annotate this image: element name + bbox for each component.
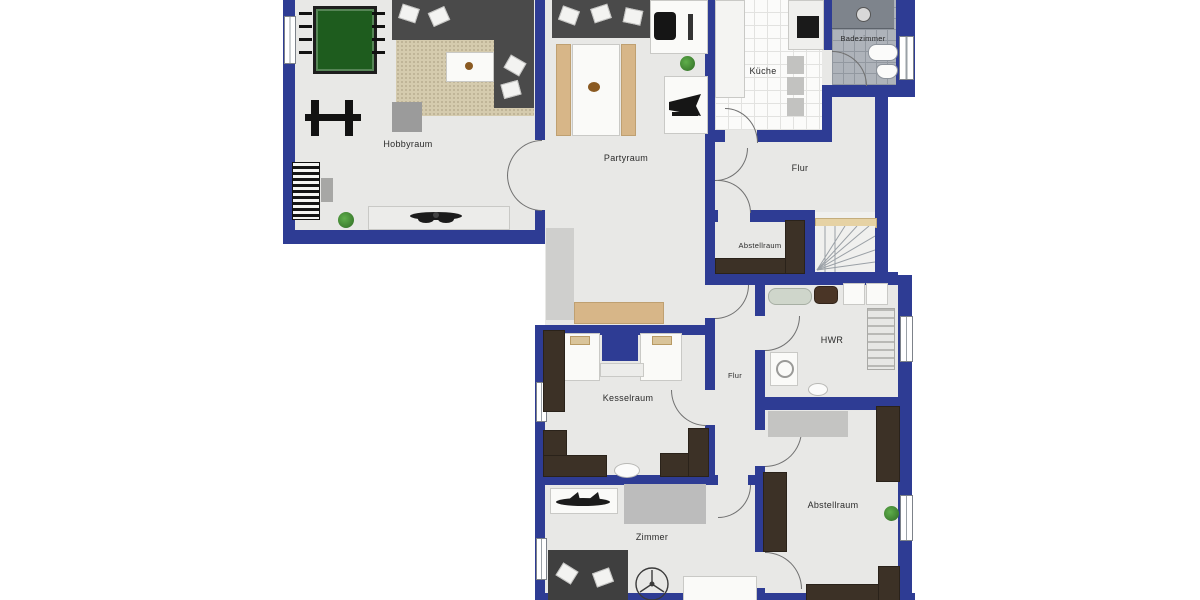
cabinet [543,330,565,412]
shower-head [856,7,871,22]
opening [705,390,715,425]
room-label-abstellraum-2: Abstellraum [780,500,886,510]
ironing-board [768,288,812,305]
room-label-hobbyraum: Hobbyraum [356,139,460,149]
appliance [866,283,888,305]
plant [338,212,354,228]
foosball-rod-handles [372,12,385,64]
wall-segment [705,210,718,222]
cabinet [763,472,787,552]
floor-plan: Hobbyraum Partyraum Küche Badezimmer Flu… [0,0,1200,600]
appliance [843,283,865,305]
runner-rug [546,228,574,320]
table-decor [588,82,600,92]
opening [718,475,748,485]
table [683,576,757,600]
boiler-label [652,336,672,345]
room-label-zimmer: Zimmer [600,532,704,542]
kitchen-counter [715,0,745,98]
cabinet [543,455,607,477]
window [284,16,296,64]
bench [556,44,571,136]
foosball-rod-handles [299,12,312,64]
window [536,538,547,580]
floor-drain [614,463,640,478]
exercise-machine [311,100,319,136]
room-label-hwr: HWR [802,335,862,345]
window [899,36,914,80]
wall-pier [602,325,638,361]
drying-rack [867,308,895,370]
wall-segment [535,210,545,234]
piano-bench [321,178,333,202]
plant [680,56,695,71]
control-panel [600,363,644,377]
boiler-label [570,336,590,345]
wall-segment [705,130,725,142]
wall-segment [822,97,832,130]
stool [787,77,804,95]
washing-machine-door [776,360,794,378]
plant [884,506,899,521]
cooktop [797,16,819,38]
winder-staircase [815,226,875,272]
wall-segment [755,350,765,430]
room-label-kueche: Küche [728,66,798,76]
cabinet [688,428,709,477]
ceiling-fan-icon [408,206,464,226]
wall-segment [822,85,915,97]
wall-segment [875,97,888,275]
opening [705,285,715,318]
rug [768,411,848,437]
foosball-table [313,6,377,74]
opening [755,430,765,466]
room-label-flur-lower: Flur [713,371,757,380]
ottoman [392,102,422,132]
cabinet [878,566,900,600]
room-label-partyraum: Partyraum [570,153,682,163]
wall-segment [283,230,545,244]
grand-piano-icon [666,82,704,126]
shelf-cabinet [715,258,789,274]
opening [822,50,832,85]
window [900,495,913,541]
wall-segment [757,130,832,142]
sink [808,383,828,396]
window [900,316,913,362]
laundry-basket [814,286,838,304]
room-label-flur-upper: Flur [770,163,830,173]
exercise-machine [345,100,353,136]
cabinet [876,406,900,482]
stool [787,98,804,116]
bed-rug [624,484,706,524]
wall-bench [574,302,664,324]
opening [755,316,765,350]
floor-flur-upper-2 [832,97,875,142]
desk-chair [654,12,676,40]
piano [292,162,320,220]
room-label-kesselraum: Kesselraum [568,393,688,403]
table-decor [465,62,473,70]
toilet [876,64,898,79]
room-label-abstellraum-1: Abstellraum [712,241,808,250]
bathtub [868,44,898,61]
room-label-badezimmer: Badezimmer [830,34,896,43]
wall-segment [535,0,545,140]
ceiling-fan-icon [634,566,670,600]
bench [621,44,636,136]
monitor [688,14,693,40]
audio-equipment-icon [554,490,612,510]
